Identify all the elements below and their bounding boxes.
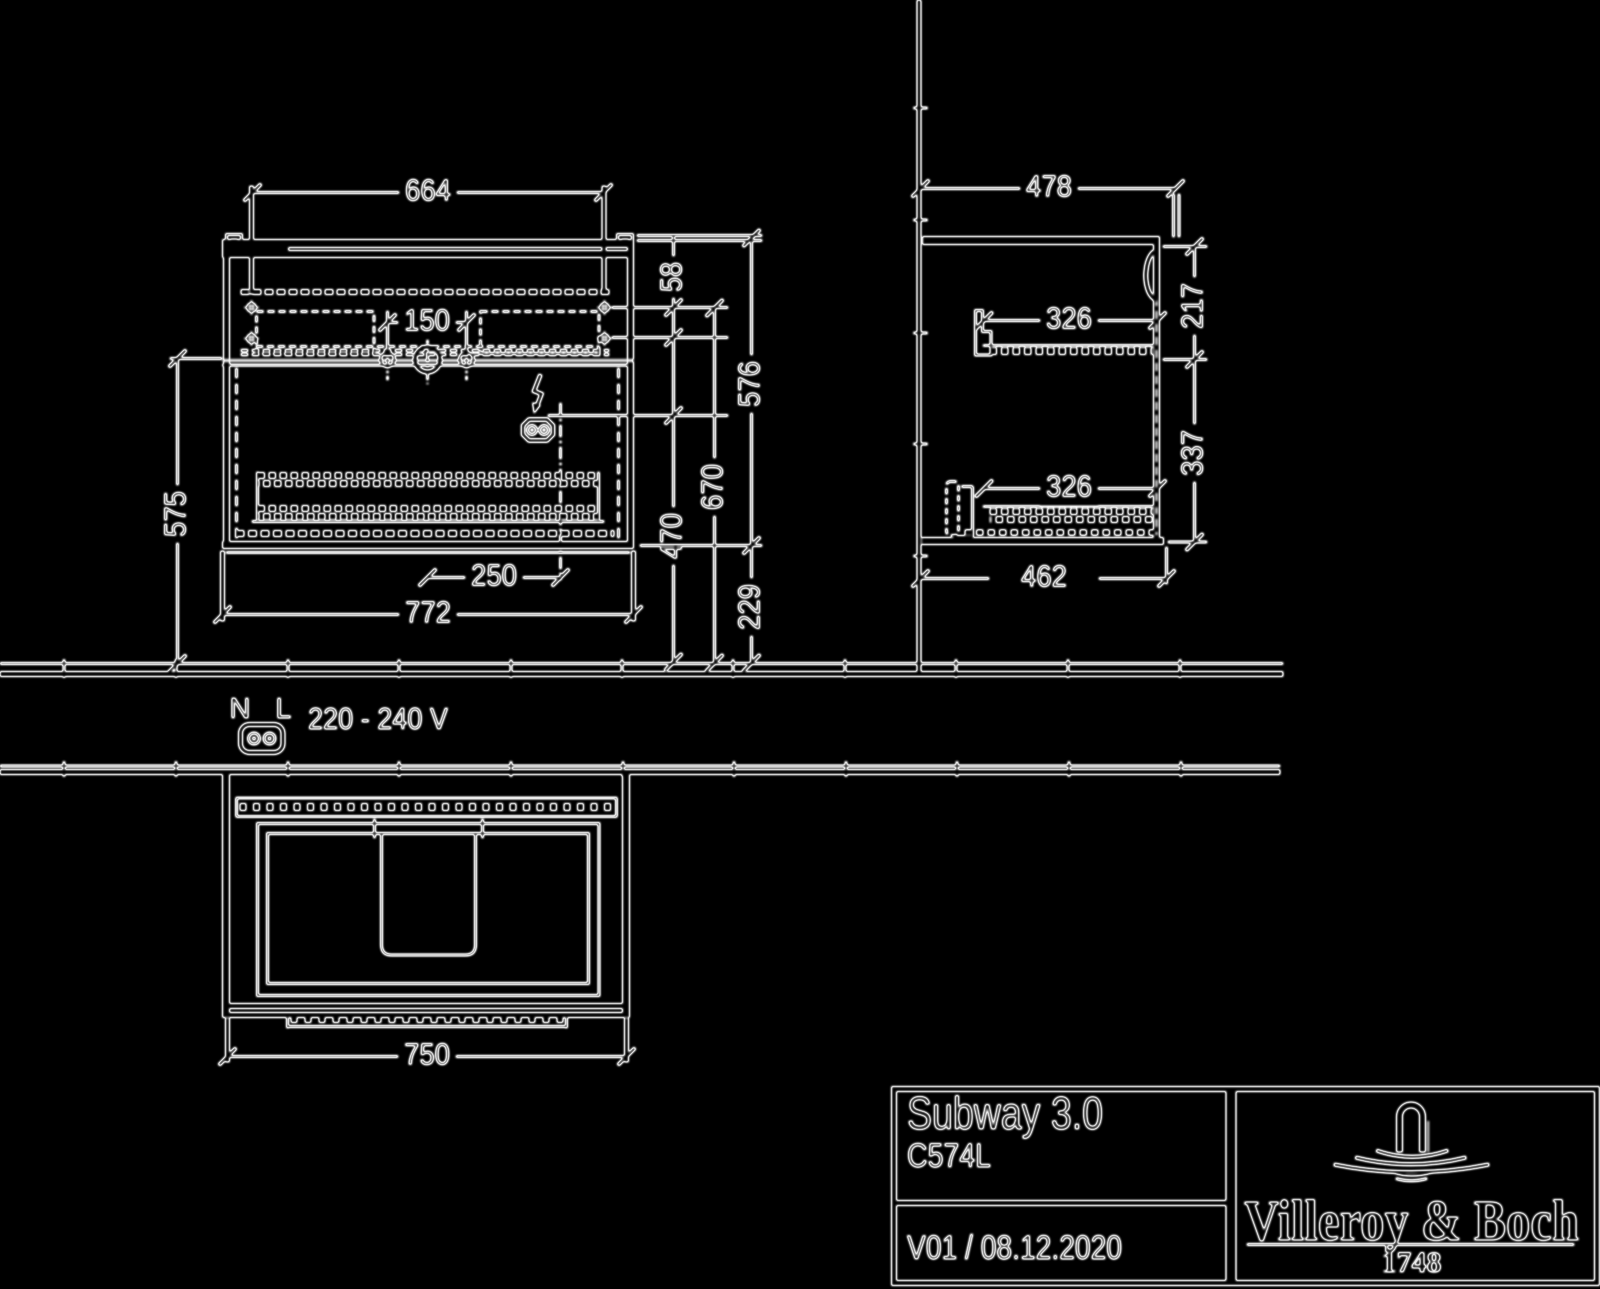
svg-text:250: 250	[471, 557, 517, 592]
svg-text:N: N	[230, 693, 251, 725]
svg-text:220 - 240 V: 220 - 240 V	[308, 701, 448, 736]
svg-text:326: 326	[1046, 468, 1092, 503]
svg-text:150: 150	[404, 302, 450, 337]
svg-text:217: 217	[1174, 283, 1209, 329]
svg-text:L: L	[275, 693, 291, 725]
svg-text:1748: 1748	[1382, 1246, 1442, 1279]
svg-text:C574L: C574L	[907, 1137, 991, 1175]
svg-text:478: 478	[1026, 168, 1072, 203]
svg-text:337: 337	[1174, 430, 1209, 476]
svg-text:664: 664	[405, 172, 451, 207]
svg-text:58: 58	[653, 262, 688, 292]
svg-text:470: 470	[653, 513, 688, 559]
svg-text:229: 229	[731, 584, 766, 630]
svg-text:750: 750	[404, 1036, 450, 1071]
svg-text:Villeroy & Boch: Villeroy & Boch	[1244, 1188, 1579, 1253]
svg-text:772: 772	[405, 594, 451, 629]
svg-text:V01 / 08.12.2020: V01 / 08.12.2020	[907, 1229, 1122, 1267]
svg-text:576: 576	[731, 361, 766, 407]
svg-text:326: 326	[1046, 300, 1092, 335]
svg-text:670: 670	[694, 464, 729, 510]
svg-text:462: 462	[1021, 558, 1067, 593]
svg-text:Subway 3.0: Subway 3.0	[907, 1087, 1103, 1139]
svg-text:575: 575	[157, 491, 192, 537]
